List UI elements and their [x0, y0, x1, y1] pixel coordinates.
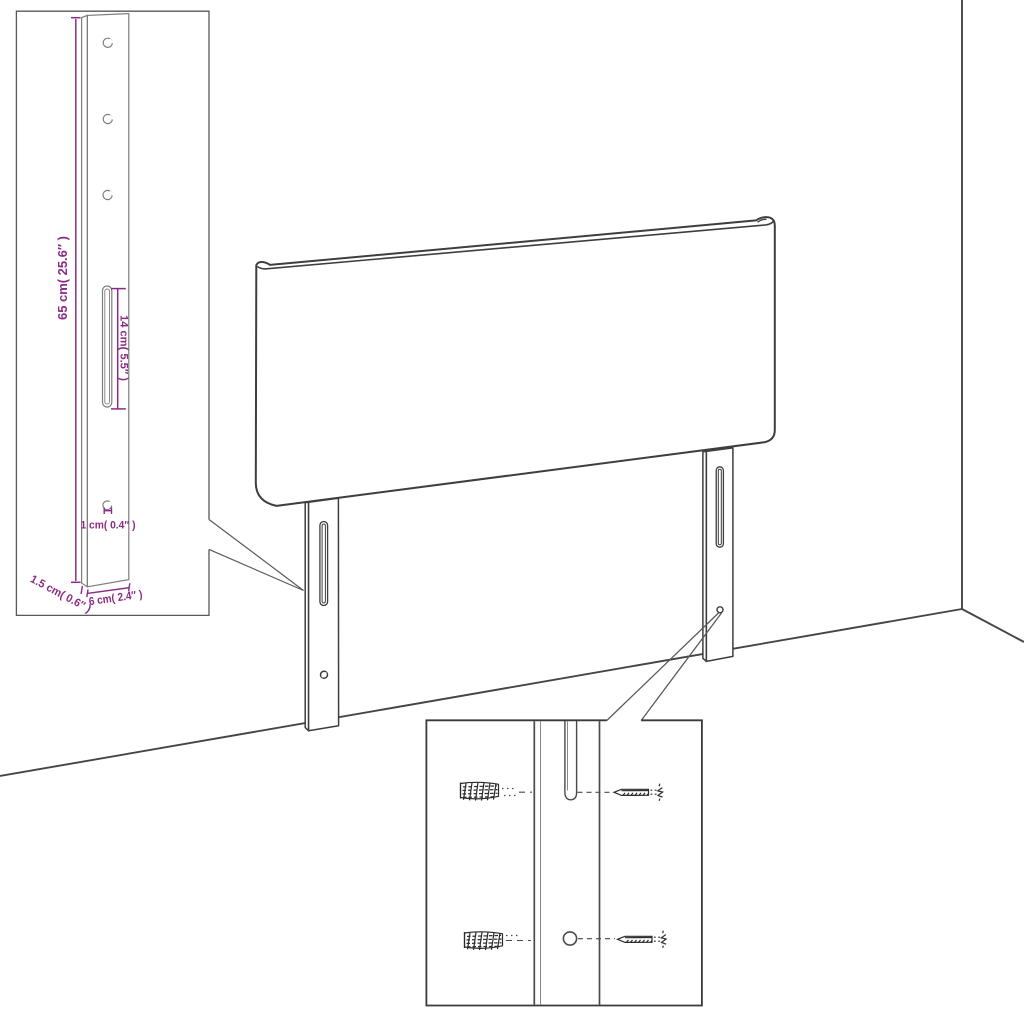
svg-text:1 cm( 0.4″ ): 1 cm( 0.4″ )	[81, 520, 136, 532]
svg-text:65 cm( 25.6″ ): 65 cm( 25.6″ )	[55, 236, 70, 320]
svg-text:14 cm( 5.5″ ): 14 cm( 5.5″ )	[117, 315, 129, 381]
